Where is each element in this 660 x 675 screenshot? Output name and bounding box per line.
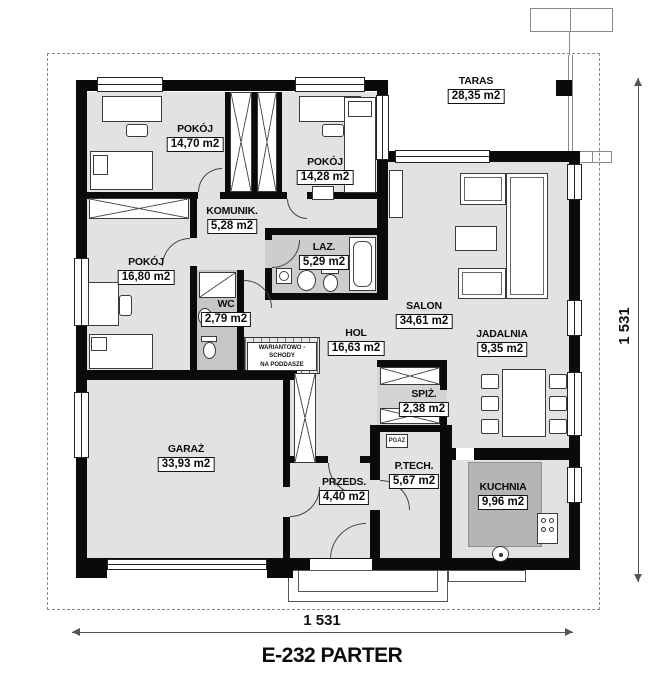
chair-symbol xyxy=(549,396,567,411)
terrace-door-window xyxy=(395,150,490,163)
room-label-jadalnia: JADALNIA 9,35 m2 xyxy=(476,329,528,357)
wall-pier xyxy=(267,558,293,578)
sofa-symbol xyxy=(506,173,548,299)
sofa-symbol xyxy=(458,268,506,299)
chair-symbol xyxy=(481,419,499,434)
room-name: GARAŻ xyxy=(158,444,215,455)
chair-symbol xyxy=(481,396,499,411)
room-label-garaz: GARAŻ 33,93 m2 xyxy=(158,444,215,472)
wardrobe-symbol xyxy=(230,92,252,192)
toilet-symbol xyxy=(203,342,216,359)
window xyxy=(376,95,389,160)
chair-symbol xyxy=(322,124,344,137)
chair-symbol xyxy=(119,295,132,316)
wall xyxy=(283,517,290,558)
wardrobe-symbol xyxy=(257,92,277,192)
room-area: 14,70 m2 xyxy=(167,137,224,153)
wall xyxy=(377,162,388,300)
bathtub-symbol xyxy=(349,237,376,291)
floor-plan: 1 531 1 531 E-232 PARTER WARIANTOWO - SC… xyxy=(0,0,660,675)
pillow-symbol xyxy=(93,155,108,175)
pillow-symbol xyxy=(348,101,372,117)
room-area: 2,38 m2 xyxy=(399,402,449,418)
shower-symbol xyxy=(199,272,236,298)
entry-door-opening xyxy=(310,559,372,570)
desk-symbol xyxy=(102,96,162,122)
room-name: LAZ. xyxy=(299,242,349,253)
room-name: JADALNIA xyxy=(476,329,528,340)
room-label-przeds: PRZEDS. 4,40 m2 xyxy=(319,477,369,505)
gas-meter-box: PGAZ xyxy=(386,434,408,448)
room-label-salon: SALON 34,61 m2 xyxy=(396,301,453,329)
room-label-komunik: KOMUNIK. 5,28 m2 xyxy=(206,206,257,234)
dimension-line-bottom xyxy=(72,632,573,633)
room-area: 16,80 m2 xyxy=(118,270,175,286)
room-name: KOMUNIK. xyxy=(206,206,257,217)
dining-table-symbol xyxy=(502,369,546,437)
wall xyxy=(190,266,197,375)
stairs-note: WARIANTOWO - SCHODY NA PODDASZE xyxy=(247,342,317,371)
page-title: E-232 PARTER xyxy=(262,644,403,668)
room-name: POKÓJ xyxy=(118,257,175,268)
room-area: 2,79 m2 xyxy=(201,312,251,328)
room-name: WC xyxy=(201,299,251,310)
room-label-hol: HOL 16,63 m2 xyxy=(328,328,385,356)
room-area: 33,93 m2 xyxy=(158,457,215,473)
room-label-kuchnia: KUCHNIA 9,96 m2 xyxy=(478,482,528,510)
wall xyxy=(220,192,287,199)
wall xyxy=(190,199,197,238)
terrace-column xyxy=(556,80,572,96)
arrow-up-icon xyxy=(634,78,642,86)
wall xyxy=(370,425,380,480)
cabinet-symbol xyxy=(389,170,403,218)
dimension-bottom-value: 1 531 xyxy=(303,612,341,629)
washer-symbol xyxy=(276,268,292,284)
room-name: HOL xyxy=(328,328,385,339)
wall xyxy=(265,293,377,300)
room-name: P.TECH. xyxy=(389,461,439,472)
wall-pier xyxy=(76,558,107,578)
room-name: PRZEDS. xyxy=(319,477,369,488)
arrow-right-icon xyxy=(565,628,573,636)
toilet-symbol xyxy=(323,274,338,292)
window xyxy=(567,372,582,436)
room-area: 34,61 m2 xyxy=(396,314,453,330)
sink-symbol xyxy=(492,546,509,562)
armchair-symbol xyxy=(460,173,506,205)
room-area: 16,63 m2 xyxy=(328,341,385,357)
chair-symbol xyxy=(549,374,567,389)
roof-edge-detail xyxy=(530,8,613,32)
wall xyxy=(370,510,380,558)
porch-step xyxy=(298,570,438,592)
wall xyxy=(377,360,447,367)
room-label-taras: TARAS 28,35 m2 xyxy=(448,76,505,104)
desk-symbol xyxy=(88,282,119,326)
wall xyxy=(265,228,377,235)
room-name: POKÓJ xyxy=(297,157,354,168)
dimension-right-value: 1 531 xyxy=(616,296,632,356)
coffee-table-symbol xyxy=(455,226,497,251)
window xyxy=(74,392,89,458)
window xyxy=(74,258,89,326)
window xyxy=(97,77,163,92)
window xyxy=(295,77,365,92)
arrow-down-icon xyxy=(634,574,642,582)
room-area: 5,29 m2 xyxy=(299,255,349,271)
room-name: KUCHNIA xyxy=(478,482,528,493)
wall xyxy=(440,425,452,558)
chair-symbol xyxy=(126,124,148,137)
room-name: SALON xyxy=(396,301,453,312)
pillow-symbol xyxy=(91,337,107,351)
cabinet-symbol xyxy=(380,367,440,385)
room-name: TARAS xyxy=(448,76,505,87)
room-name: POKÓJ xyxy=(167,124,224,135)
wall xyxy=(87,370,297,380)
room-label-pokoj-3: POKÓJ 16,80 m2 xyxy=(118,257,175,285)
room-area: 14,28 m2 xyxy=(297,170,354,186)
room-area: 9,35 m2 xyxy=(477,342,527,358)
arrow-left-icon xyxy=(72,628,80,636)
wardrobe-symbol xyxy=(89,198,189,219)
window xyxy=(567,300,582,336)
stairs-note-line1: WARIANTOWO - SCHODY xyxy=(248,344,316,361)
room-label-ptech: P.TECH. 5,67 m2 xyxy=(389,461,439,489)
wall xyxy=(569,151,580,570)
room-label-pokoj-2: POKÓJ 14,28 m2 xyxy=(297,157,354,185)
wall xyxy=(440,360,447,390)
chair-symbol xyxy=(481,374,499,389)
side-step-line xyxy=(448,570,526,571)
stairs-note-line2: NA PODDASZE xyxy=(248,361,316,369)
dimension-line-right xyxy=(638,78,639,582)
roof-edge-line xyxy=(570,8,571,32)
garage-door xyxy=(107,559,267,570)
wall xyxy=(377,425,447,432)
washbasin-symbol xyxy=(297,270,316,291)
room-area: 5,28 m2 xyxy=(207,219,257,235)
stove-symbol xyxy=(537,513,558,544)
kitchen-opening xyxy=(456,448,474,460)
window xyxy=(567,467,582,503)
room-area: 28,35 m2 xyxy=(448,89,505,105)
room-label-wc: WC 2,79 m2 xyxy=(201,299,251,327)
room-area: 9,96 m2 xyxy=(478,495,528,511)
room-area: 5,67 m2 xyxy=(389,474,439,490)
room-area: 4,40 m2 xyxy=(319,490,369,506)
wardrobe-symbol xyxy=(294,373,316,463)
room-label-laz: LAZ. 5,29 m2 xyxy=(299,242,349,270)
room-label-pokoj-1: POKÓJ 14,70 m2 xyxy=(167,124,224,152)
room-label-spiz: SPIŻ. 2,38 m2 xyxy=(399,389,449,417)
window xyxy=(567,164,582,200)
wall xyxy=(277,92,282,192)
wall xyxy=(283,380,290,487)
roof-edge-line xyxy=(569,32,570,55)
room-name: SPIŻ. xyxy=(399,389,449,400)
chair-symbol xyxy=(549,419,567,434)
nightstand-symbol xyxy=(312,186,334,200)
